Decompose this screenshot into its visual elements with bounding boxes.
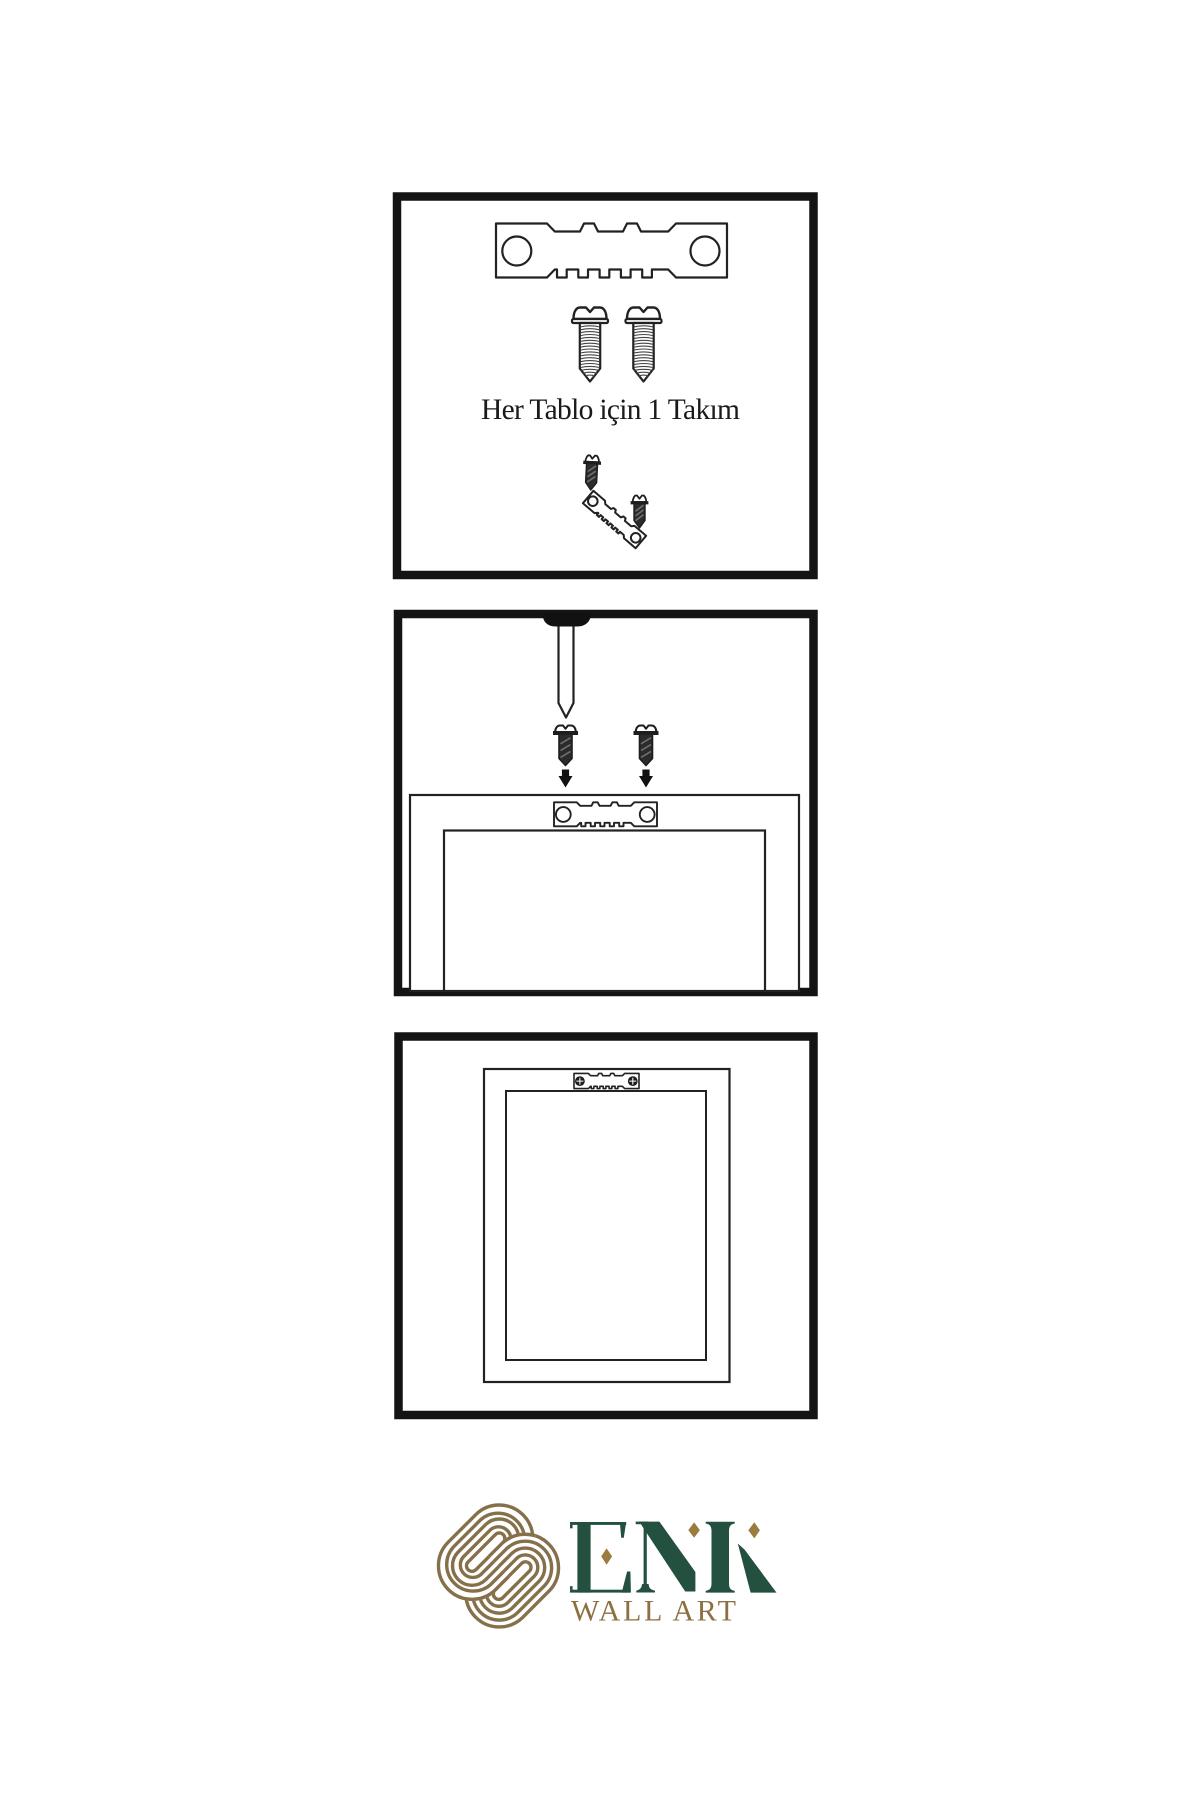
svg-text:WALL ART: WALL ART <box>571 1595 739 1628</box>
svg-text:Her Tablo için 1 Takım: Her Tablo için 1 Takım <box>481 394 740 426</box>
